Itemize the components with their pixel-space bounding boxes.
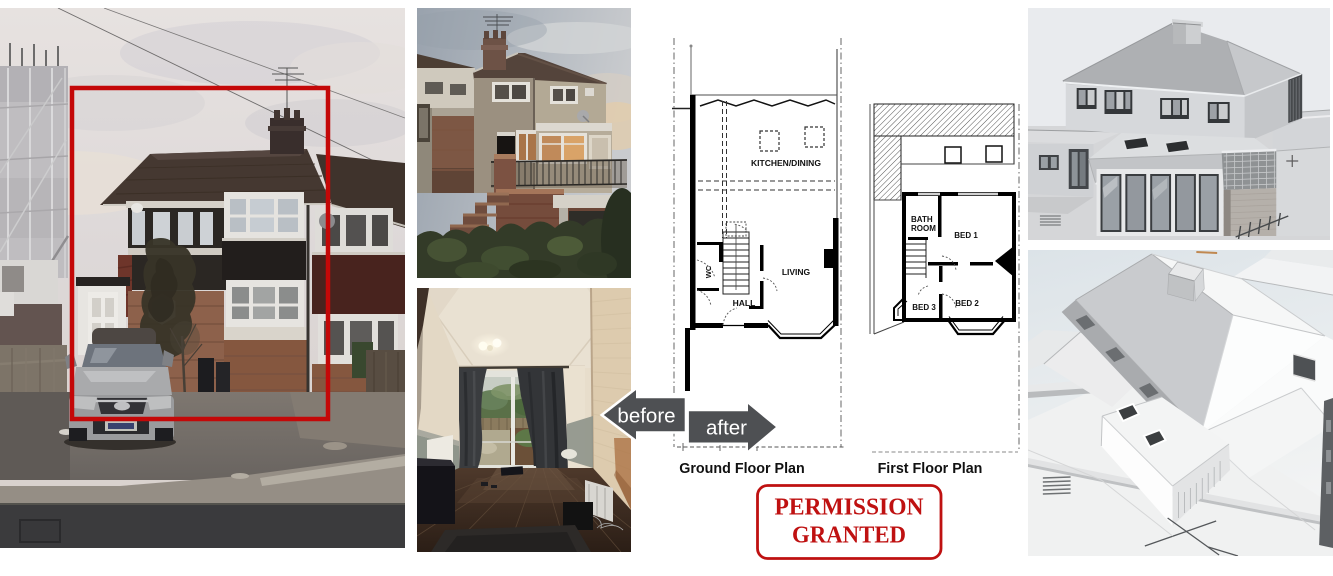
svg-text:GRANTED: GRANTED — [792, 523, 906, 549]
svg-text:PERMISSION: PERMISSION — [775, 495, 925, 521]
svg-text:before: before — [617, 405, 675, 428]
svg-text:WC: WC — [704, 265, 713, 278]
svg-text:BED 1: BED 1 — [954, 231, 978, 240]
svg-text:BED 3: BED 3 — [912, 303, 936, 312]
svg-text:LIVING: LIVING — [782, 267, 811, 277]
svg-text:KITCHEN/DINING: KITCHEN/DINING — [751, 158, 821, 168]
svg-text:Ground Floor Plan: Ground Floor Plan — [679, 461, 805, 477]
svg-text:BATH: BATH — [911, 215, 933, 224]
svg-text:ROOM: ROOM — [911, 224, 936, 233]
svg-text:after: after — [706, 417, 747, 440]
svg-text:BED 2: BED 2 — [955, 299, 979, 308]
svg-text:First Floor Plan: First Floor Plan — [878, 461, 983, 477]
svg-text:HALL: HALL — [733, 298, 756, 308]
